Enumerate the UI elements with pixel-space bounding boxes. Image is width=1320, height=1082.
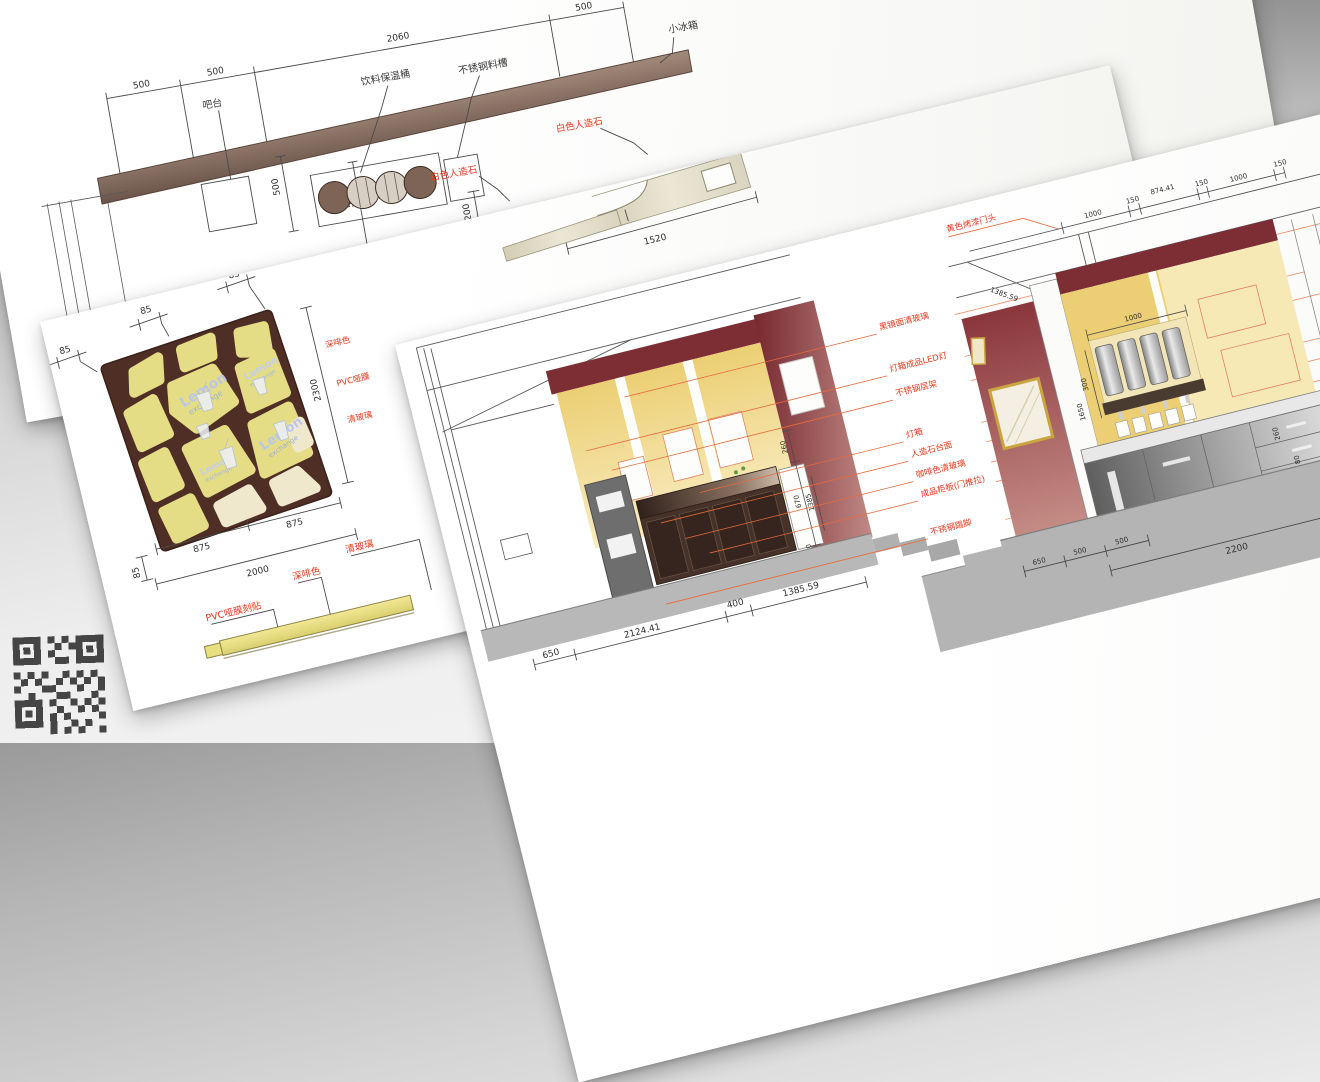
- annotation-2: 不锈钢层架: [894, 378, 938, 399]
- annotation-5: 咖啡色清玻璃: [915, 458, 968, 481]
- qr-code: [12, 634, 107, 735]
- dim-875-b: 875: [285, 517, 304, 531]
- dim-500-a: 500: [132, 79, 151, 92]
- annotation-1: 灯箱成品LED灯: [888, 350, 949, 375]
- gold-sign: [971, 338, 985, 364]
- label-beverage-warmer: 饮料保温桶: [360, 67, 411, 88]
- dim-85-b: 85: [139, 305, 152, 317]
- annotation-0: 黑镜面清玻璃: [878, 310, 931, 333]
- dim-2300: 2300: [309, 377, 324, 402]
- strip-drawing: PVC哑膜刻贴 深啡色 清玻璃: [189, 527, 436, 662]
- dim-2000: 2000: [246, 564, 271, 579]
- dim-85-v: 85: [131, 566, 143, 579]
- annotation-7: 不锈钢踢脚: [929, 517, 973, 538]
- dim-500-b: 500: [206, 66, 225, 79]
- side-label-pvc: PVC哑膜: [335, 371, 371, 390]
- label-strip-pvc: PVC哑膜刻贴: [204, 599, 263, 624]
- beverage-barrels: [310, 146, 484, 226]
- dim-b-150a: 150: [1125, 195, 1140, 206]
- dim-875-a: 875: [192, 542, 211, 556]
- label-small-fridge: 小冰箱: [667, 18, 699, 36]
- dim-b-874: 874.41: [1150, 183, 1176, 197]
- side-label-dark: 深啡色: [324, 334, 352, 351]
- lemon-panel: Lemon exchange Lemon exchange Lemon exch…: [100, 309, 333, 552]
- dim-b-150c: 150: [1273, 158, 1288, 169]
- side-label-glass: 清玻璃: [346, 409, 374, 426]
- leader-stone-b: [600, 121, 647, 162]
- annotation-3: 灯箱: [905, 426, 925, 441]
- dim-85-a: 85: [58, 345, 71, 357]
- label-strip-glass: 清玻璃: [344, 537, 375, 555]
- label-bar-counter: 吧台: [201, 96, 223, 112]
- label-stone-a: 白色人造石: [429, 163, 478, 183]
- dim-1520: 1520: [643, 232, 668, 247]
- label-stone-b: 白色人造石: [555, 115, 604, 135]
- label-steel-trough: 不锈钢料槽: [457, 56, 508, 77]
- label-strip-dark: 深啡色: [291, 564, 322, 582]
- dim-2060: 2060: [386, 31, 411, 45]
- dim-500-c: 500: [574, 1, 593, 14]
- annotation-4: 人造石台面: [910, 439, 954, 460]
- dim-500-v1: 500: [270, 177, 283, 196]
